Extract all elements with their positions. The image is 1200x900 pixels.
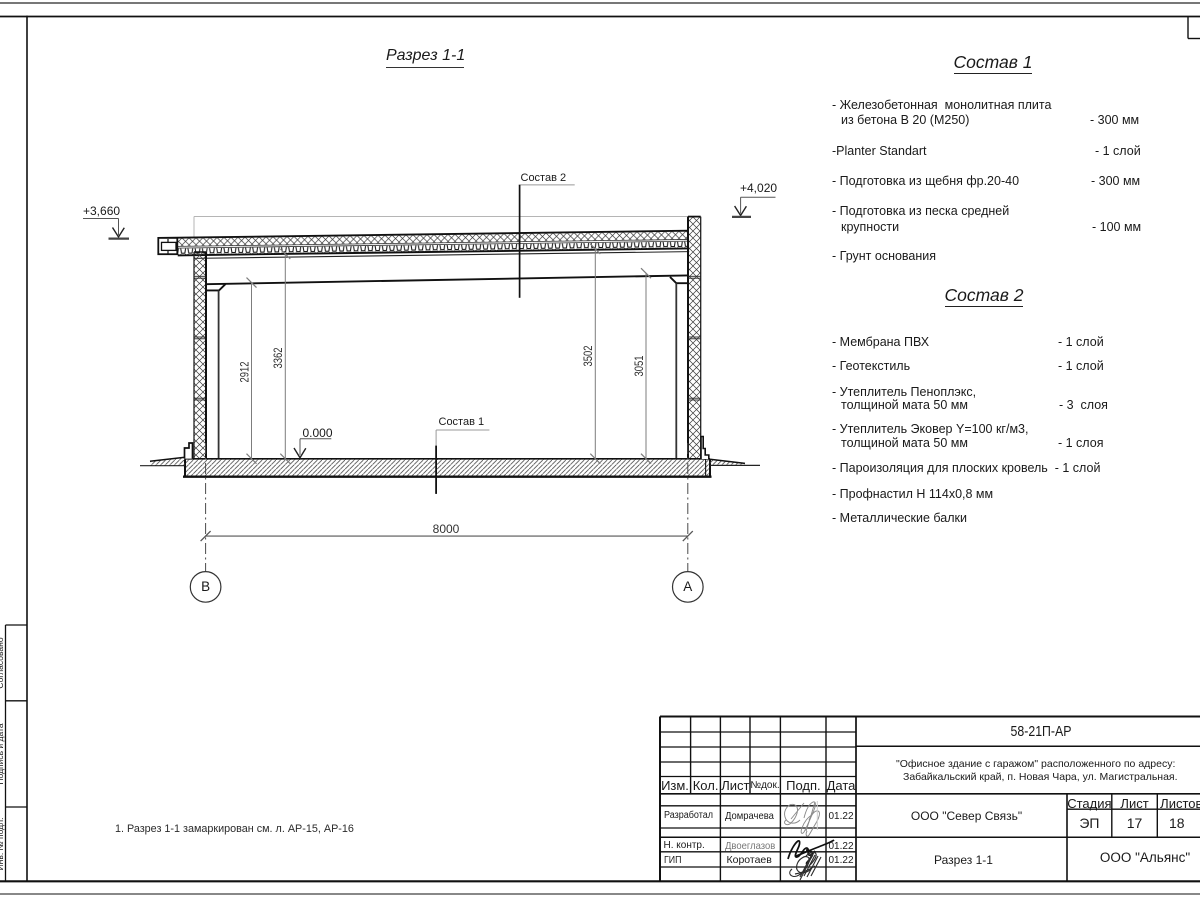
svg-text:3051: 3051 — [632, 355, 646, 376]
svg-text:2912: 2912 — [237, 361, 251, 382]
svg-text:3502: 3502 — [581, 345, 595, 366]
svg-text:3362: 3362 — [271, 347, 285, 368]
